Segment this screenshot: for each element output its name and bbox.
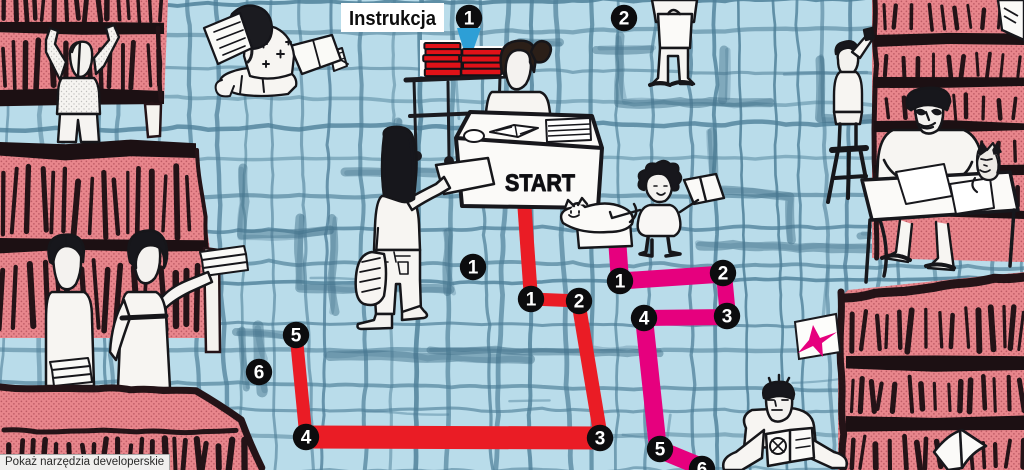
svg-text:1: 1 bbox=[615, 272, 626, 293]
svg-text:6: 6 bbox=[254, 363, 265, 384]
svg-text:Instrukcja: Instrukcja bbox=[349, 7, 437, 30]
svg-text:4: 4 bbox=[639, 309, 650, 330]
svg-text:5: 5 bbox=[655, 440, 666, 461]
svg-text:2: 2 bbox=[718, 264, 729, 285]
svg-text:5: 5 bbox=[291, 326, 302, 347]
svg-text:6: 6 bbox=[697, 460, 708, 470]
svg-text:1: 1 bbox=[468, 258, 479, 279]
svg-text:3: 3 bbox=[722, 307, 733, 328]
svg-text:1: 1 bbox=[526, 290, 537, 311]
svg-text:4: 4 bbox=[301, 428, 312, 449]
svg-text:START: START bbox=[505, 170, 575, 197]
svg-text:3: 3 bbox=[595, 429, 606, 450]
svg-text:1: 1 bbox=[464, 9, 475, 30]
svg-text:2: 2 bbox=[574, 292, 585, 313]
svg-text:2: 2 bbox=[619, 9, 630, 30]
